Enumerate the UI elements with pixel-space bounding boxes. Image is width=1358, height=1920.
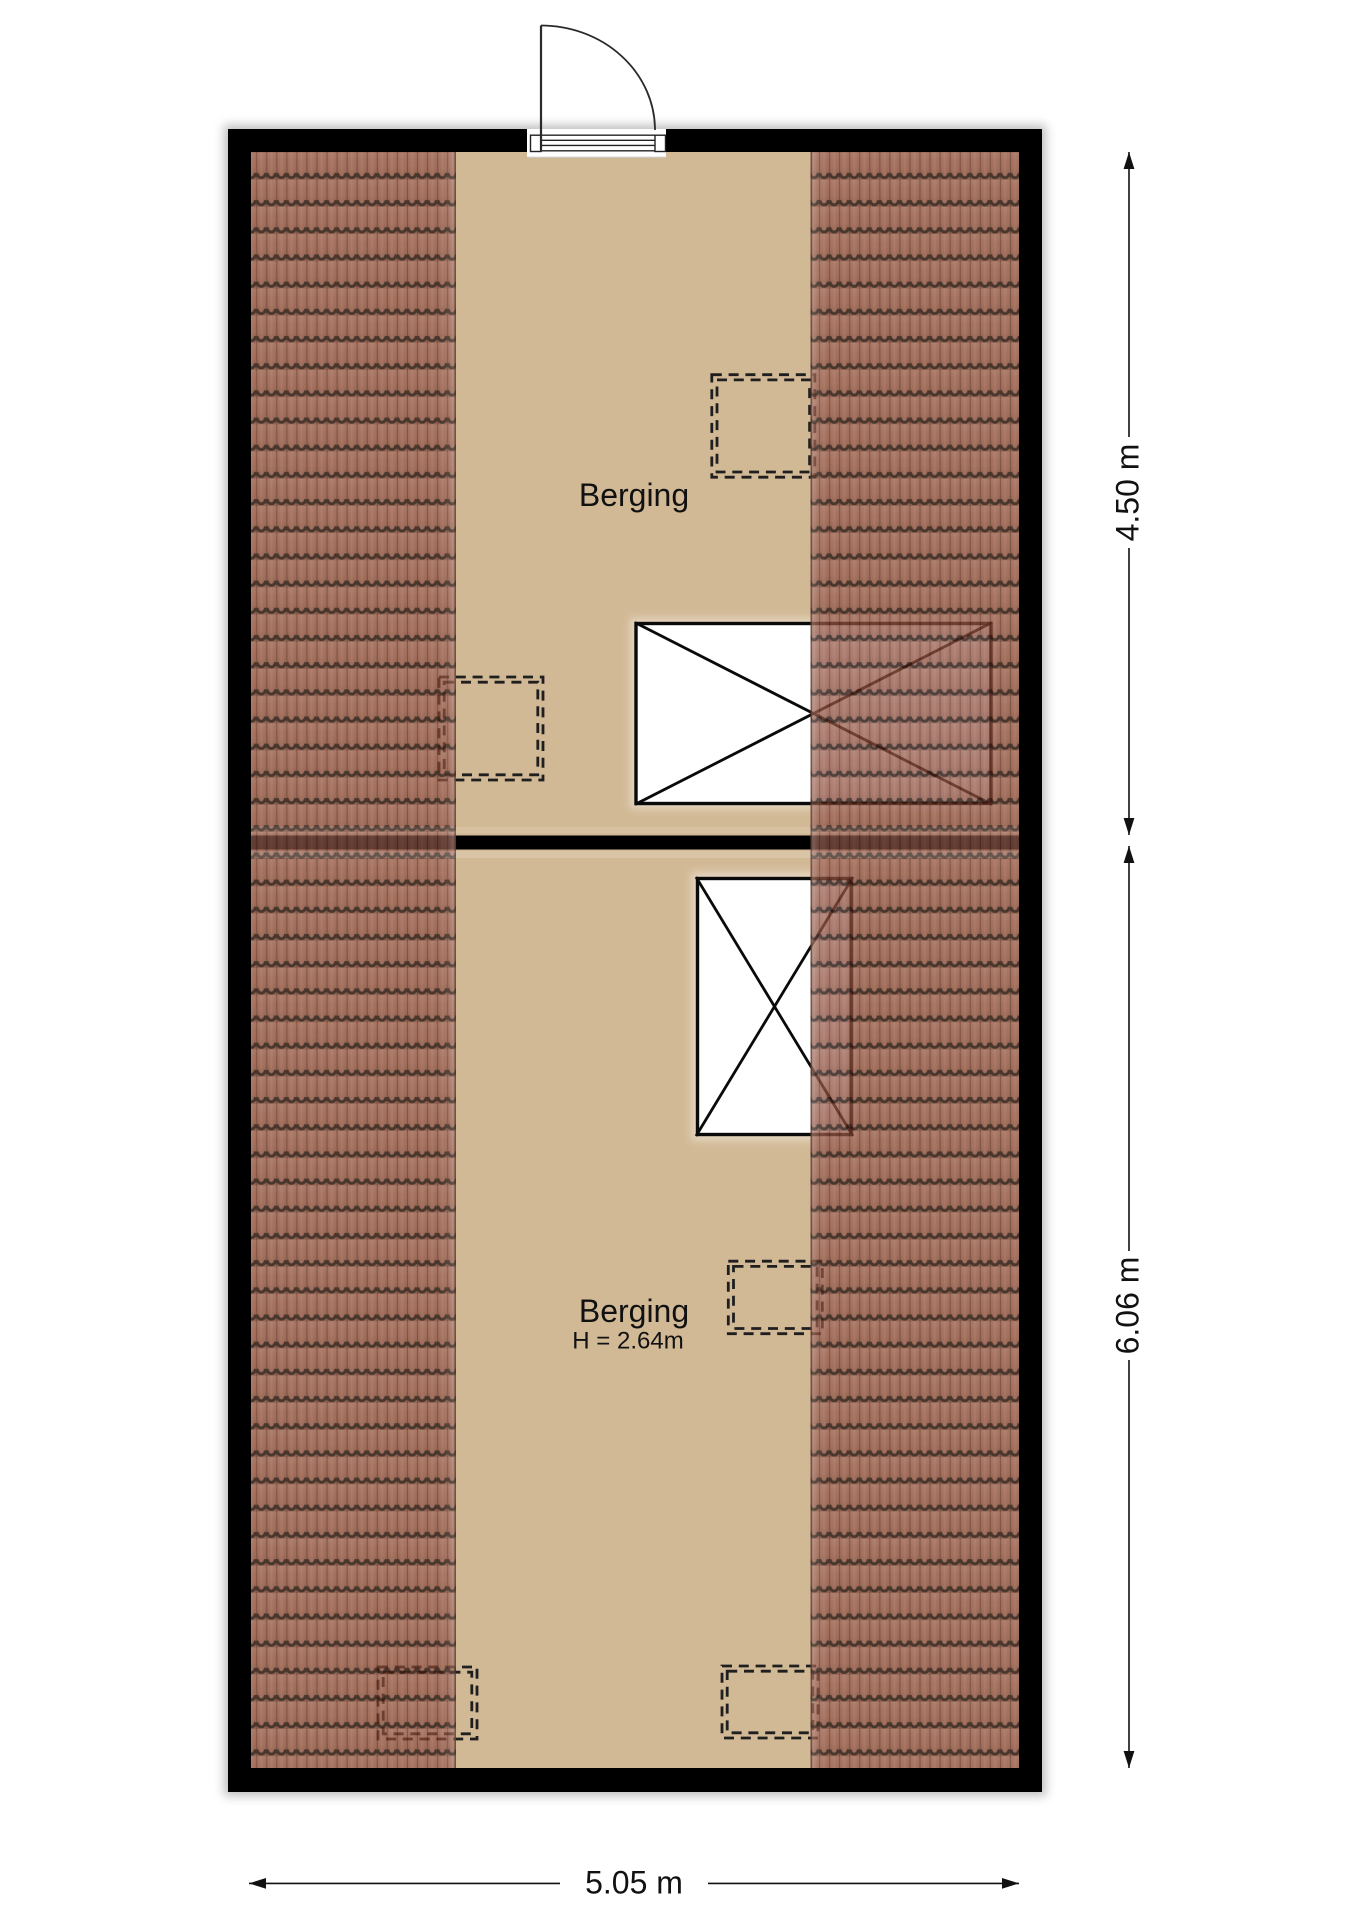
svg-text:Berging: Berging — [579, 1293, 689, 1329]
svg-text:5.05 m: 5.05 m — [585, 1865, 683, 1901]
svg-text:6.06 m: 6.06 m — [1110, 1257, 1146, 1355]
svg-text:H = 2.64m: H = 2.64m — [572, 1328, 683, 1355]
svg-text:Berging: Berging — [579, 477, 689, 513]
svg-text:4.50 m: 4.50 m — [1110, 444, 1146, 542]
